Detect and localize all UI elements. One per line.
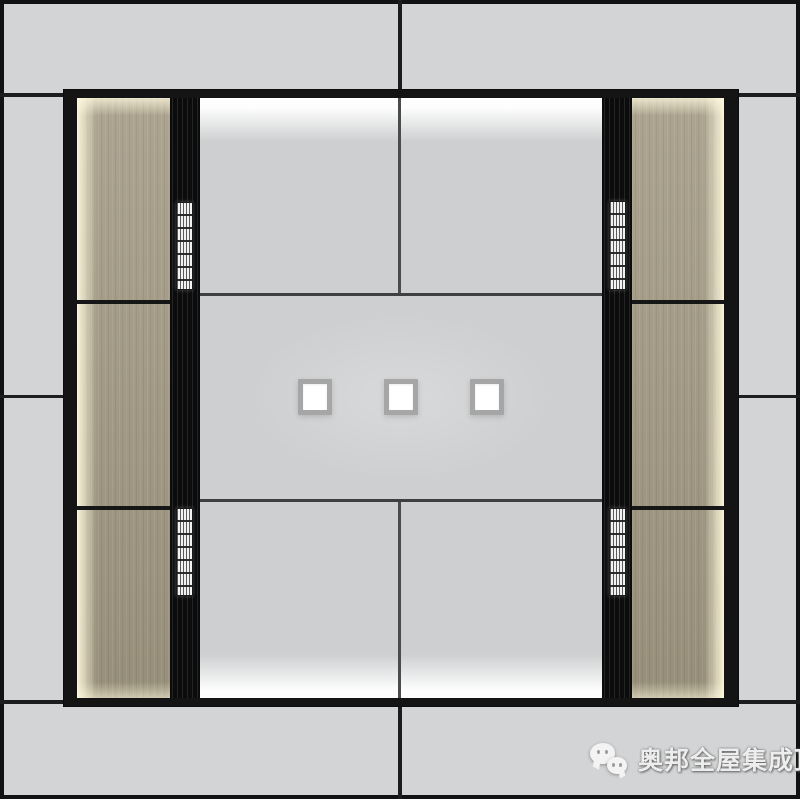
grid-line-right-band-lower: [736, 700, 800, 704]
panel-seam-horizontal-upper: [200, 293, 602, 296]
vent-grille: [609, 508, 626, 596]
cove-light-strip-top: [200, 98, 602, 142]
wood-column-left: [77, 98, 170, 698]
grid-line-left-band-middle: [0, 395, 64, 398]
recessed-light: [298, 379, 332, 415]
grid-line-left-band-lower: [0, 700, 64, 704]
cove-light-strip-bottom: [200, 654, 602, 698]
ceiling-render-image: 奥邦全屋集成顶: [0, 0, 800, 799]
wechat-bubble-small: [607, 757, 627, 774]
grid-line-right-band-middle: [736, 395, 800, 398]
image-edge-right: [796, 0, 800, 799]
vent-strip-left: [170, 98, 200, 698]
watermark-text: 奥邦全屋集成顶: [638, 741, 800, 777]
panel-seam-vertical-bottom-row: [398, 502, 401, 698]
ceiling-feature-frame: [64, 90, 738, 706]
brand-watermark: 奥邦全屋集成顶: [590, 738, 800, 780]
vent-strip-right: [602, 98, 632, 698]
vent-grille: [609, 201, 626, 290]
vent-grille: [176, 508, 193, 596]
cove-glow-on-wood-right: [632, 98, 724, 698]
recessed-light: [384, 379, 418, 415]
grid-line-bottom-band-vertical: [398, 706, 402, 799]
wechat-icon: [590, 741, 630, 777]
wood-column-right: [632, 98, 724, 698]
panel-seam-horizontal-lower: [200, 499, 602, 502]
image-edge-left: [0, 0, 4, 799]
wood-panel-divider: [632, 300, 724, 304]
center-panel-field: [200, 98, 602, 698]
wood-panel-divider: [77, 300, 170, 304]
wood-panel-divider: [77, 506, 170, 510]
panel-seam-vertical-top-row: [398, 98, 401, 293]
recessed-light: [470, 379, 504, 415]
vent-grille: [176, 202, 193, 290]
grid-line-top-band-vertical: [398, 0, 402, 90]
wood-panel-divider: [632, 506, 724, 510]
grid-line-left-band-upper: [0, 93, 64, 97]
cove-glow-on-wood-left: [77, 98, 170, 698]
grid-line-right-band-upper: [736, 93, 800, 97]
